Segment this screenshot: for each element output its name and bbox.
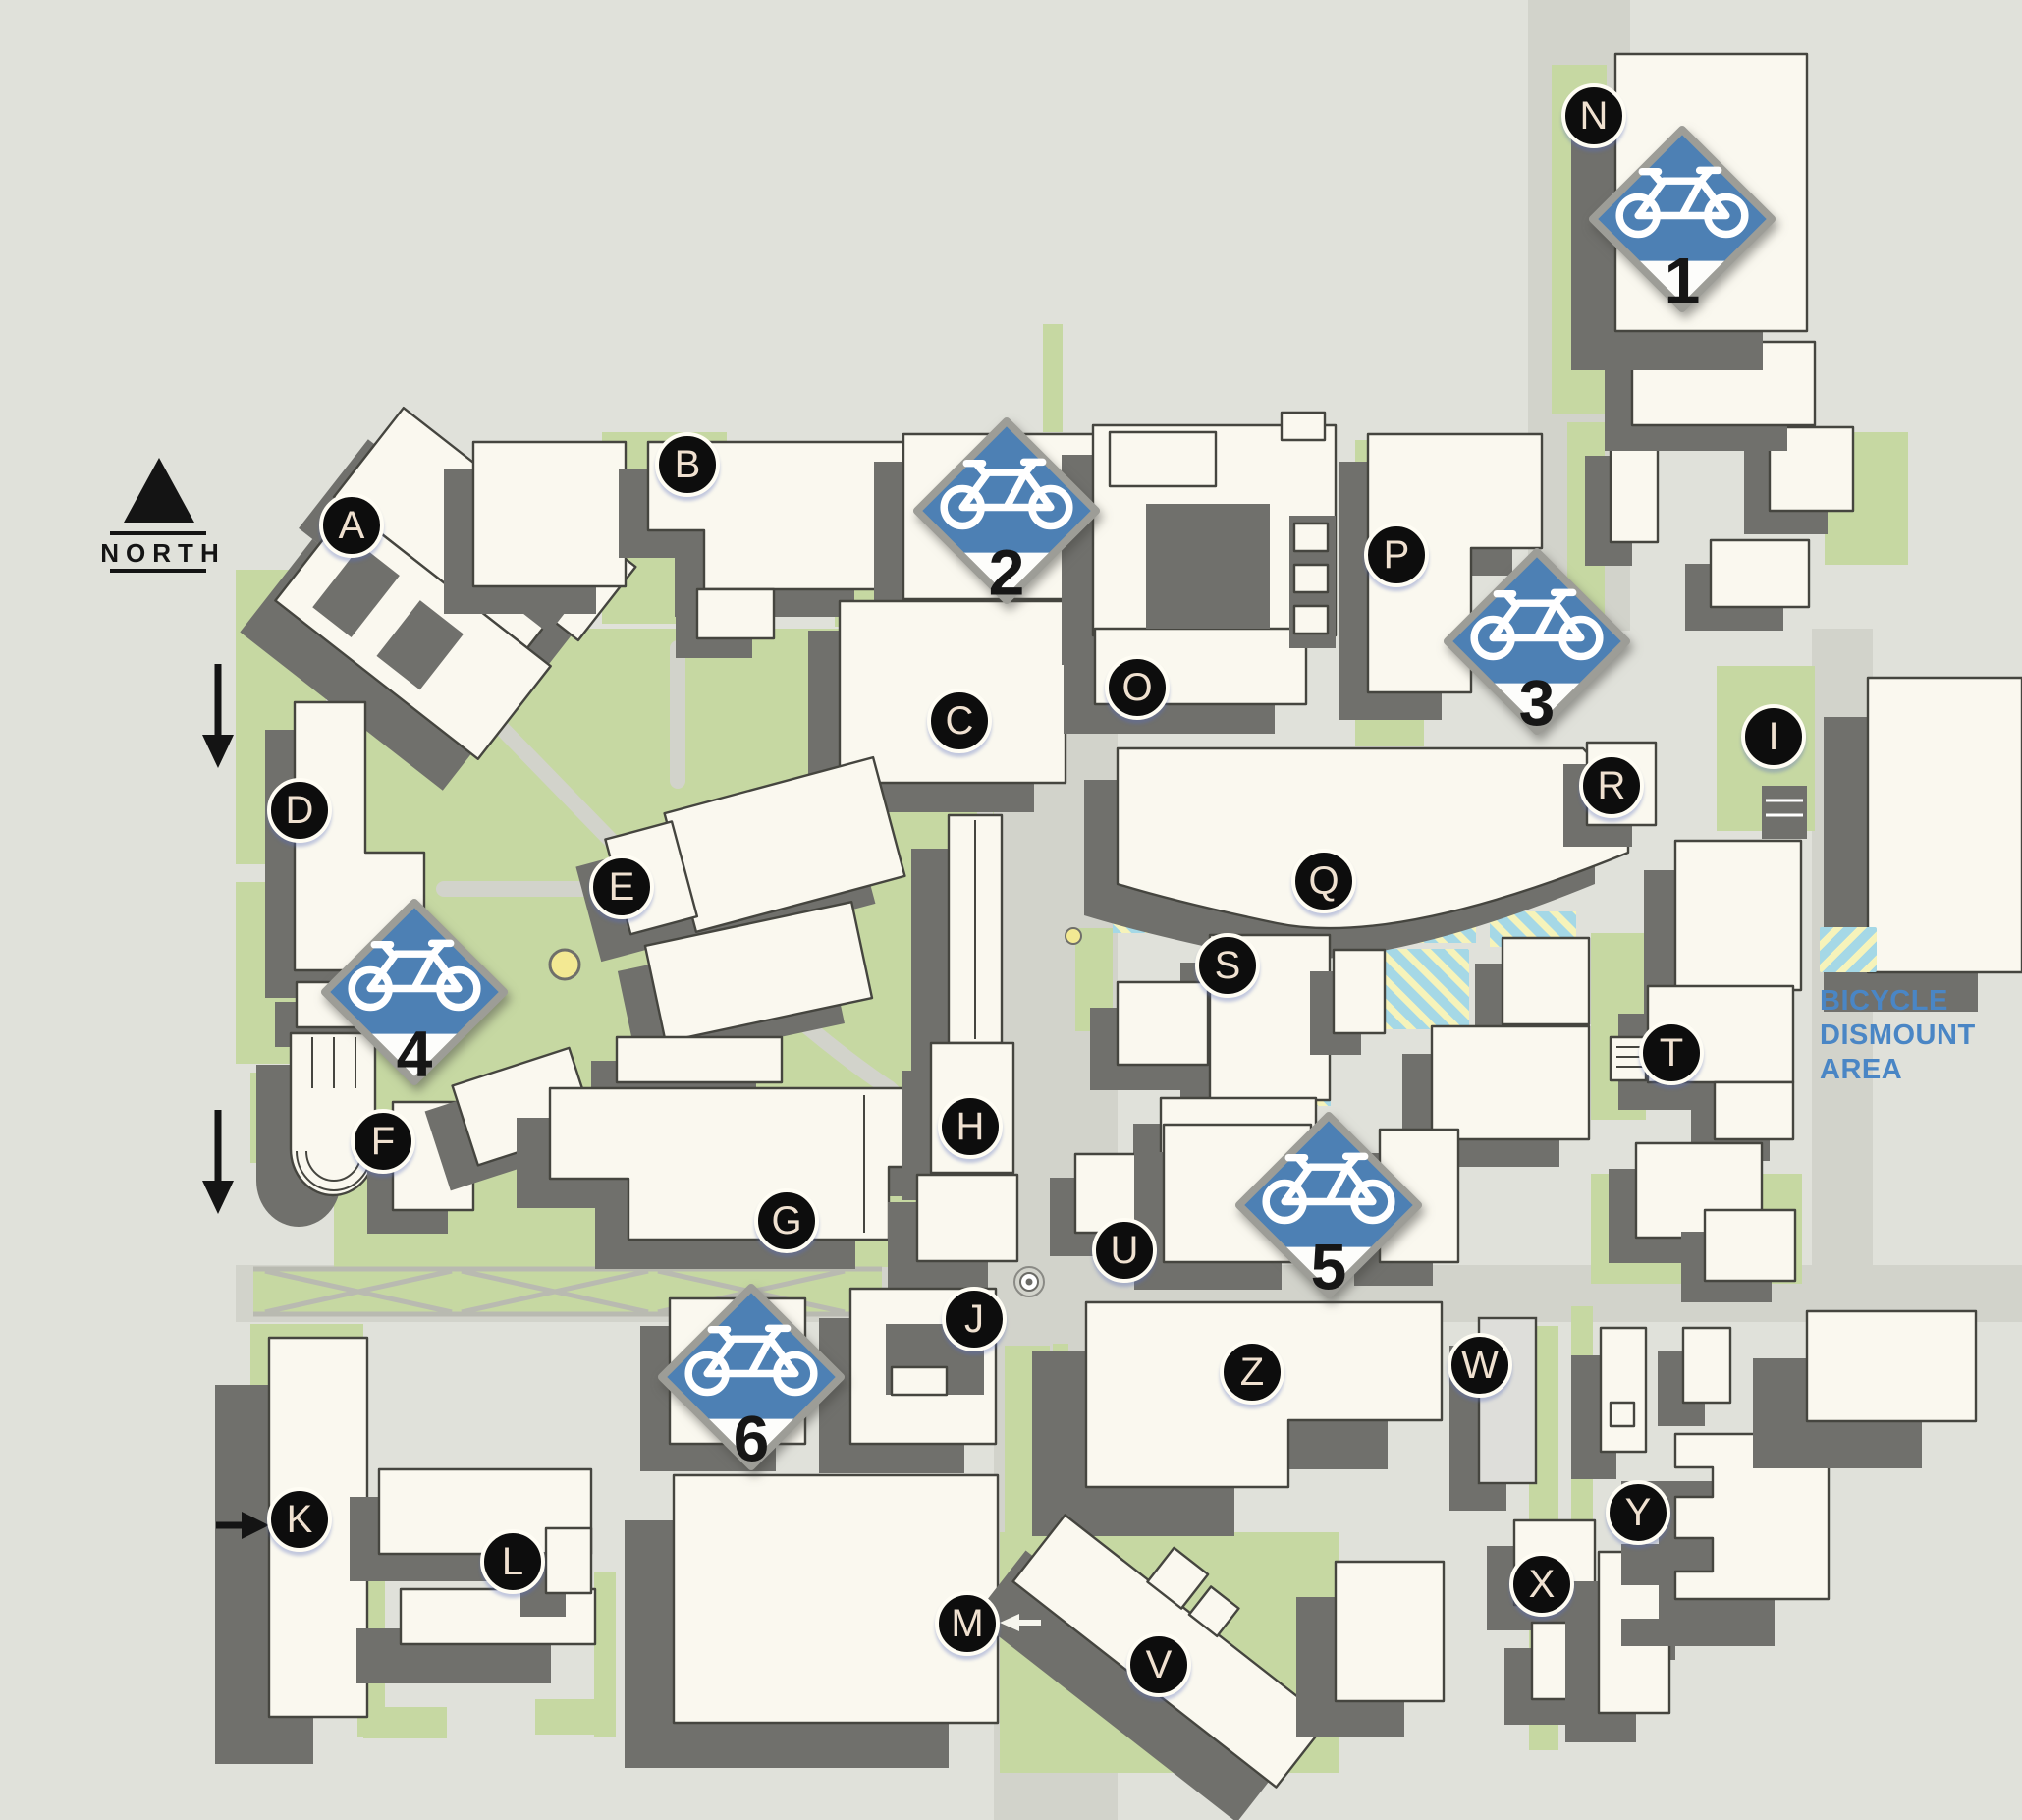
map-marker-f: F (351, 1109, 415, 1174)
bike-parking-sign-6: 6 (656, 1282, 847, 1472)
map-marker-o: O (1105, 655, 1170, 720)
map-marker-l: L (480, 1529, 545, 1594)
map-marker-r: R (1579, 753, 1644, 818)
bike-route-sign-graphic: 2 (911, 415, 1102, 606)
map-marker-w: W (1448, 1333, 1512, 1398)
map-marker-s: S (1195, 933, 1260, 998)
sign-number: 4 (397, 1017, 433, 1087)
sign-number: 2 (989, 535, 1025, 606)
bike-parking-sign-5: 5 (1233, 1110, 1424, 1300)
bike-parking-sign-2: 2 (911, 415, 1102, 606)
bike-route-sign-graphic: 5 (1233, 1110, 1424, 1300)
campus-bicycle-map: NORTH ABCDEFGHIJKLMNOPQRSTUVWXYZ 1 (0, 0, 2022, 1820)
map-marker-k: K (267, 1487, 332, 1552)
map-marker-i: I (1741, 704, 1806, 769)
bike-route-sign-graphic: 4 (319, 897, 510, 1087)
map-marker-e: E (589, 855, 654, 919)
bike-parking-sign-4: 4 (319, 897, 510, 1087)
yellow-dot (550, 950, 579, 979)
legend-bicycle-dismount: BICYCLE DISMOUNT AREA (1820, 927, 2022, 1087)
dismount-area-swatch-icon (1820, 927, 1877, 972)
map-marker-u: U (1092, 1218, 1157, 1283)
sign-number: 6 (734, 1402, 770, 1472)
map-marker-m: M (935, 1591, 1000, 1656)
map-marker-y: Y (1606, 1480, 1670, 1545)
map-marker-p: P (1364, 523, 1429, 587)
bike-route-sign-graphic: 6 (656, 1282, 847, 1472)
map-marker-j: J (942, 1287, 1007, 1351)
bike-parking-sign-1: 1 (1587, 124, 1777, 314)
sign-number: 1 (1665, 244, 1701, 314)
map-marker-g: G (754, 1188, 819, 1253)
sign-number: 5 (1311, 1230, 1347, 1300)
legend-label-line-3: AREA (1820, 1053, 2022, 1087)
map-marker-v: V (1126, 1632, 1191, 1697)
north-label: NORTH (100, 538, 225, 568)
map-marker-x: X (1509, 1552, 1574, 1617)
map-marker-q: Q (1291, 849, 1356, 913)
map-marker-n: N (1561, 83, 1626, 148)
legend-label-line-2: DISMOUNT (1820, 1019, 2022, 1053)
map-marker-z: Z (1220, 1340, 1284, 1405)
map-marker-b: B (655, 432, 720, 497)
yellow-dot-small (1066, 928, 1081, 944)
map-marker-t: T (1639, 1020, 1704, 1085)
legend-label-line-1: BICYCLE (1820, 984, 2022, 1019)
map-marker-a: A (319, 493, 384, 558)
bike-route-sign-graphic: 1 (1587, 124, 1777, 314)
map-marker-d: D (267, 778, 332, 843)
map-marker-c: C (927, 689, 992, 753)
bike-route-sign-graphic: 3 (1442, 546, 1632, 737)
map-marker-h: H (938, 1094, 1003, 1159)
bike-parking-sign-3: 3 (1442, 546, 1632, 737)
sign-number: 3 (1519, 666, 1556, 737)
